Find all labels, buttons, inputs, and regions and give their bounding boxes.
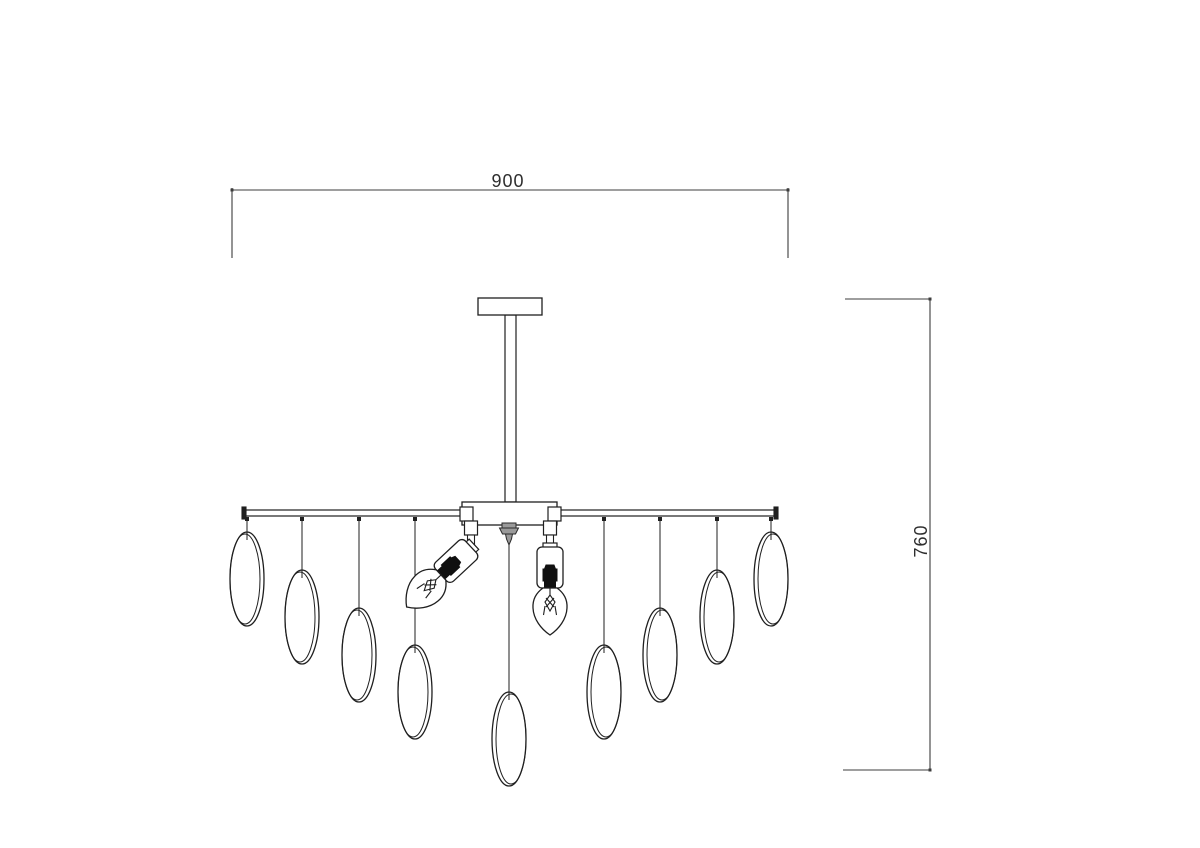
glass-drop-5 xyxy=(492,692,526,786)
lamp-holder xyxy=(543,569,557,588)
width-dimension-label: 900 xyxy=(478,171,538,191)
height-dimension-label: 760 xyxy=(911,511,931,571)
glass-drop-7 xyxy=(643,517,677,702)
cord-dot xyxy=(413,517,417,521)
candle-bulb-left xyxy=(395,521,486,619)
bar-clamp xyxy=(460,507,473,521)
glass-drop-1 xyxy=(230,517,264,626)
cord-dot xyxy=(245,517,249,521)
cord-dot xyxy=(658,517,662,521)
dimension-endpoint-tick xyxy=(929,298,932,301)
dimension-endpoint-tick xyxy=(787,189,790,192)
bar-clamp xyxy=(548,507,561,521)
glass-drop-2 xyxy=(285,517,319,664)
cord-dot xyxy=(357,517,361,521)
chandelier-line-drawing xyxy=(0,0,1200,848)
dimension-endpoint-tick xyxy=(231,189,234,192)
cord-dot xyxy=(300,517,304,521)
glass-drop-6 xyxy=(587,517,621,739)
width-dimension xyxy=(231,188,790,258)
cord-dot xyxy=(769,517,773,521)
glass-drop-3 xyxy=(342,517,376,702)
ceiling-canopy xyxy=(478,298,542,315)
glass-drop-8 xyxy=(700,517,734,664)
candle-bulb-right xyxy=(533,521,567,635)
center-finial xyxy=(500,523,519,545)
dimension-endpoint-tick xyxy=(929,769,932,772)
cord-dot xyxy=(715,517,719,521)
glass-drop-4 xyxy=(398,517,432,739)
bar-end-cap xyxy=(774,507,778,519)
bulb-clamp-band xyxy=(544,521,557,535)
cord-dot xyxy=(602,517,606,521)
glass-drop-9 xyxy=(754,517,788,626)
technical-drawing-page: 900 760 xyxy=(0,0,1200,848)
stem xyxy=(505,315,516,502)
bulb-clamp-band xyxy=(465,521,478,535)
